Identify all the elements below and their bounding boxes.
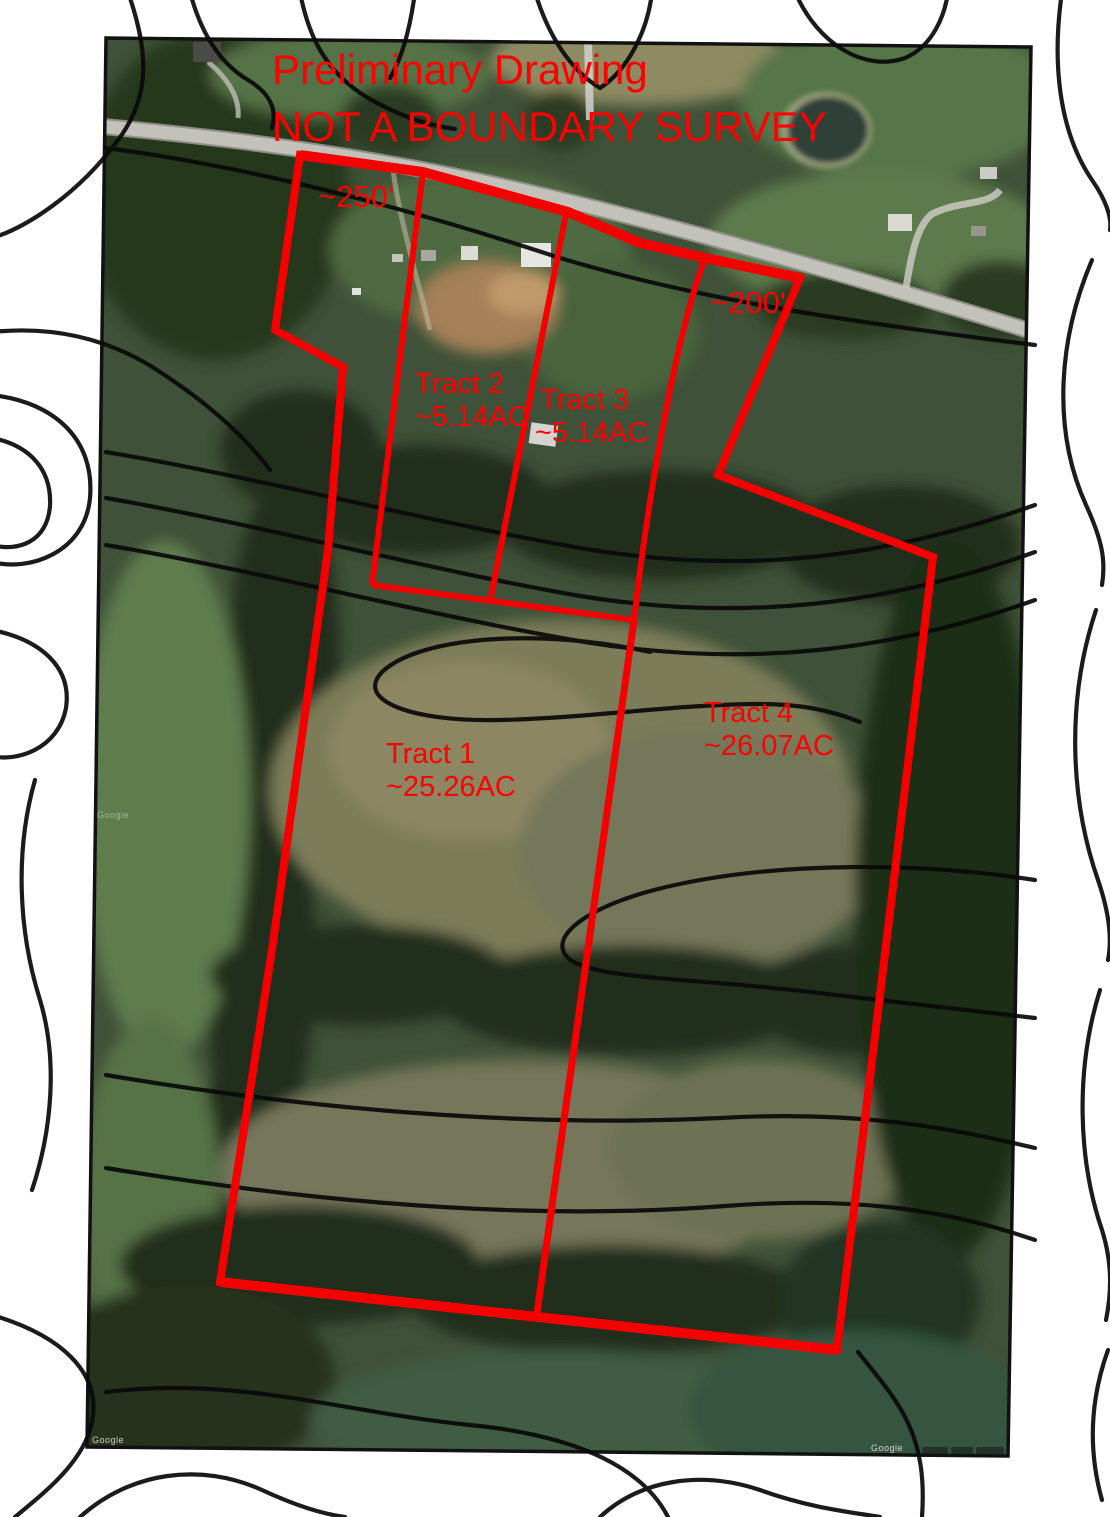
title-line-2: NOT A BOUNDARY SURVEY xyxy=(272,103,827,150)
tract1-name: Tract 1 xyxy=(386,738,516,771)
tract2-name: Tract 2 xyxy=(415,368,529,401)
tract4-label: Tract 4 ~26.07AC xyxy=(704,697,834,763)
google-watermark-bottom-right: Google xyxy=(871,1443,903,1453)
tract1-label: Tract 1 ~25.26AC xyxy=(386,738,516,804)
tract2-label: Tract 2 ~5.14AC xyxy=(415,368,529,434)
distance-label-250: ~250' xyxy=(318,180,394,215)
tract3-label: Tract 3 ~5.14AC xyxy=(540,384,649,450)
google-watermark-left: Google xyxy=(97,810,129,820)
survey-drawing-page: Preliminary Drawing NOT A BOUNDARY SURVE… xyxy=(0,0,1110,1517)
tract4-area: ~26.07AC xyxy=(704,730,834,763)
tract3-area: ~5.14AC xyxy=(535,417,649,450)
tract1-area: ~25.26AC xyxy=(386,771,516,804)
attribution-strip xyxy=(922,1447,1004,1454)
tract3-name: Tract 3 xyxy=(540,384,649,417)
distance-label-200: ~200' xyxy=(710,286,786,321)
tract2-area: ~5.14AC xyxy=(415,401,529,434)
google-watermark-bottom-left: Google xyxy=(92,1435,124,1445)
tract4-name: Tract 4 xyxy=(704,697,834,730)
map-graphic xyxy=(0,0,1110,1517)
title-line-1: Preliminary Drawing xyxy=(272,46,648,93)
